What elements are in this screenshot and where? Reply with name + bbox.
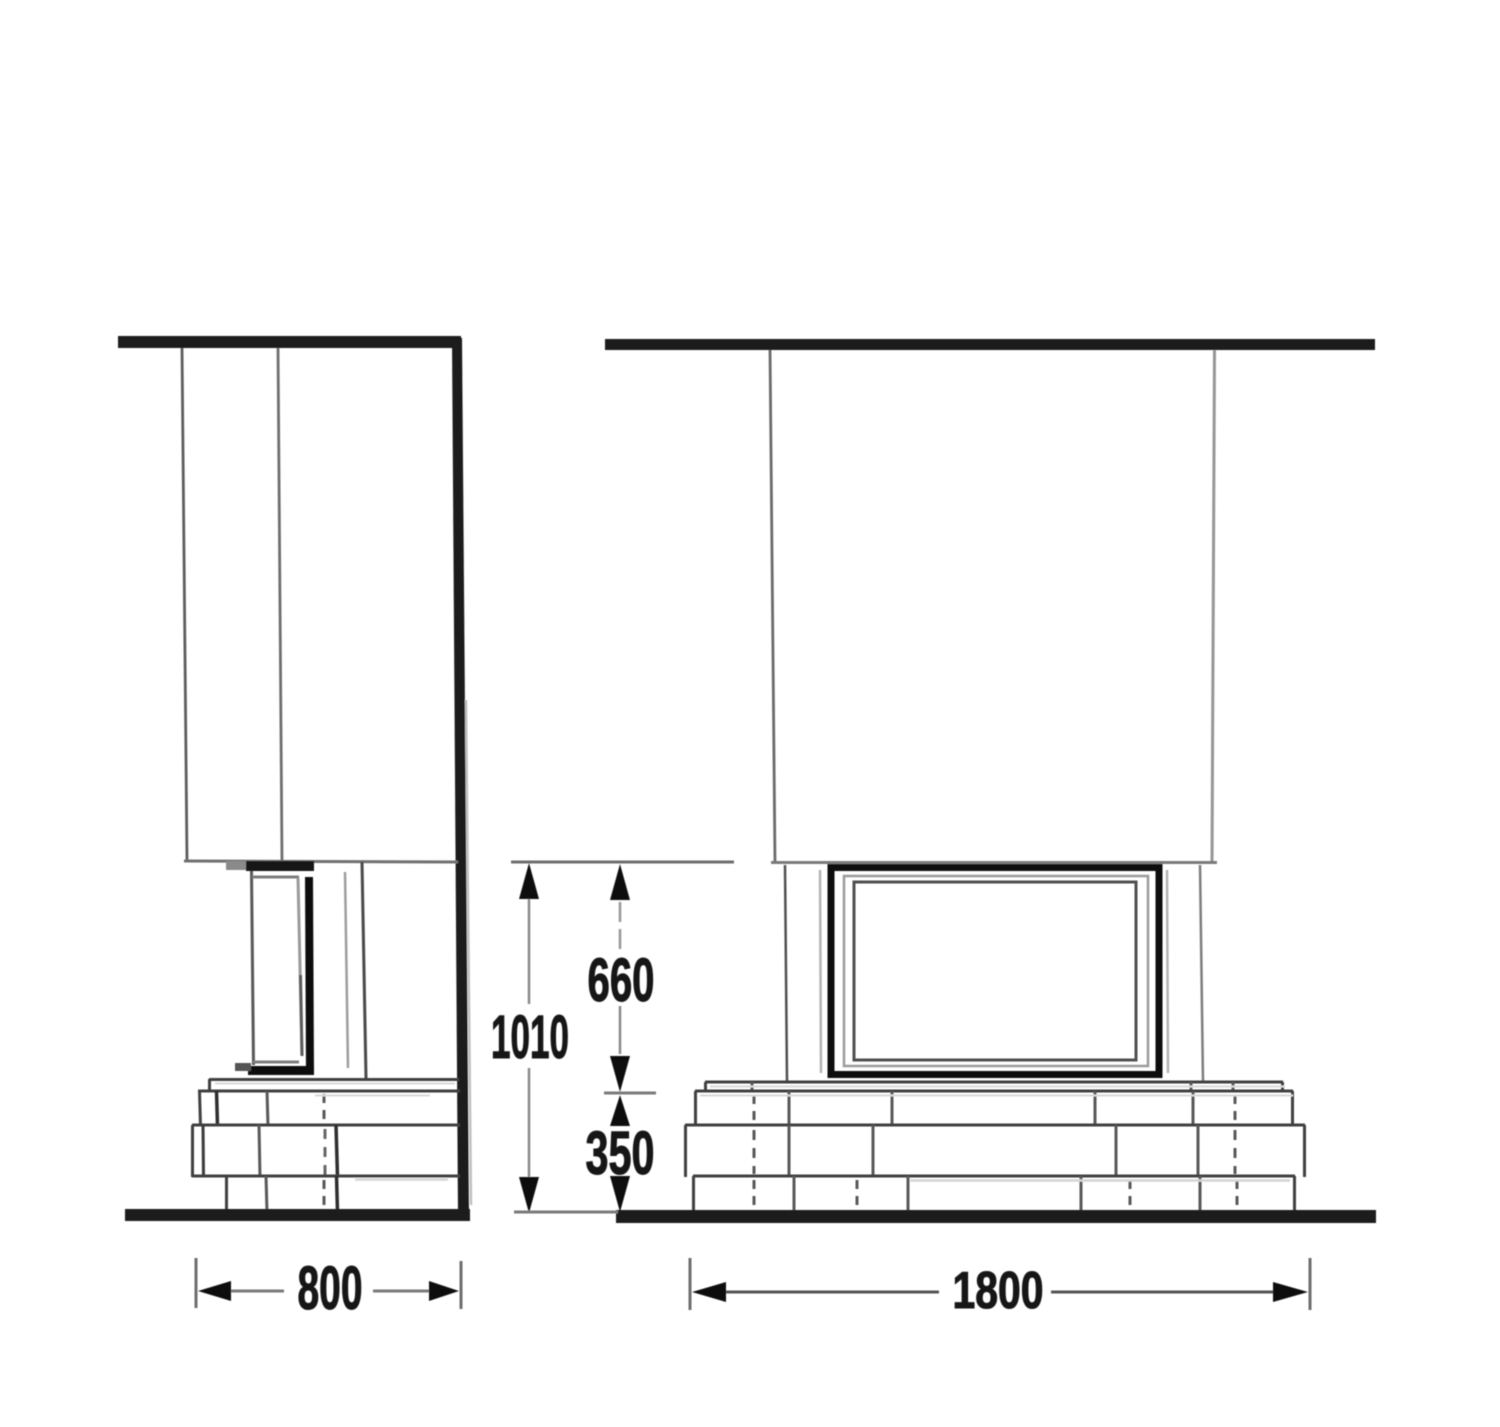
svg-text:1800: 1800: [953, 1262, 1044, 1320]
svg-text:660: 660: [588, 946, 655, 1014]
svg-text:800: 800: [298, 1254, 363, 1322]
svg-text:1010: 1010: [491, 1003, 569, 1071]
svg-text:350: 350: [586, 1119, 655, 1187]
